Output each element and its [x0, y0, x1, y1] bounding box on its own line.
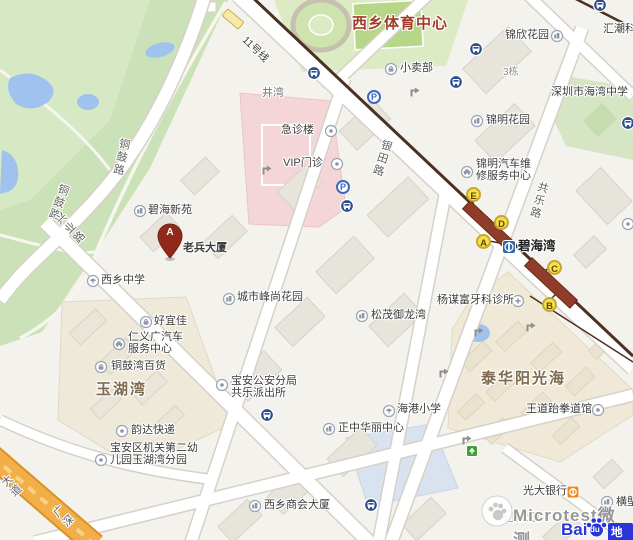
poi-label[interactable]: 深圳市海湾中学 [551, 86, 628, 98]
shop-icon[interactable] [96, 362, 107, 373]
park-icon[interactable] [467, 446, 478, 457]
metro-station-icon[interactable] [503, 241, 516, 254]
poi-label[interactable]: 锦明汽车维 [476, 158, 531, 170]
poi-label[interactable]: 锦明花园 [486, 114, 530, 126]
poi-label[interactable]: 急诊楼 [281, 124, 314, 136]
poi-label[interactable]: 修服务中心 [476, 170, 531, 182]
building-icon[interactable] [250, 501, 261, 512]
parking-icon[interactable]: P [336, 180, 350, 194]
baidu-logo-du: du [590, 525, 600, 534]
car-service-icon[interactable] [114, 339, 125, 350]
poi-label[interactable]: 宝安公安分局 [231, 375, 297, 387]
bus-stop-icon[interactable] [308, 67, 321, 80]
poi-label[interactable]: 西乡商会大厦 [264, 499, 330, 511]
dot-icon[interactable] [593, 405, 604, 416]
poi-label[interactable]: 好宜佳 [154, 315, 187, 327]
dot-icon[interactable] [332, 159, 343, 170]
area-label-taihua: 泰华阳光海 [481, 373, 566, 385]
baidu-map-canvas[interactable]: 西乡体育中心 玉湖湾 泰华阳光海 铜鼓路 铜鼓路 兴业路 银田路 共乐路 大道 … [0, 0, 633, 540]
area-label-yuhuwan: 玉湖湾 [96, 384, 147, 396]
poi-label[interactable]: VIP门诊 [283, 157, 323, 169]
poi-laobing-building[interactable]: 老兵大厦 [183, 242, 227, 254]
watermark-paw-icon [481, 495, 514, 528]
poi-label[interactable]: 杨谋富牙科诊所 [437, 294, 514, 306]
baidu-logo-ditu: 地图 [608, 523, 633, 540]
dot-icon[interactable] [117, 426, 128, 437]
building-icon[interactable] [224, 294, 235, 305]
poi-label[interactable]: 松茂御龙湾 [371, 309, 426, 321]
poi-label[interactable]: 共乐派出所 [231, 387, 286, 399]
bank-icon[interactable] [567, 486, 579, 498]
metro-exit-e[interactable]: E [466, 187, 481, 202]
bus-stop-icon[interactable] [365, 499, 378, 512]
school-icon[interactable] [88, 276, 99, 287]
poi-label[interactable]: 服务中心 [128, 343, 172, 355]
building-icon[interactable] [357, 311, 368, 322]
poi-label[interactable]: 宝安区机关第二幼 [110, 442, 198, 454]
bus-stop-icon[interactable] [341, 200, 354, 213]
poi-label[interactable]: 光大银行 [523, 485, 567, 497]
poi-label[interactable]: 汇潮科技 [603, 23, 633, 35]
map-scene [0, 0, 633, 540]
metro-station-name[interactable]: 碧海湾 [518, 240, 556, 252]
area-label-sports-center: 西乡体育中心 [352, 18, 448, 30]
dot-icon[interactable] [96, 455, 107, 466]
metro-exit-b[interactable]: B [542, 297, 557, 312]
dot-icon[interactable] [326, 126, 337, 137]
parking-icon[interactable]: P [367, 90, 381, 104]
bus-stop-icon[interactable] [622, 117, 633, 130]
poi-label[interactable]: 锦欣花园 [505, 29, 549, 41]
poi-label[interactable]: 海港小学 [397, 403, 441, 415]
marker-pin-letter: A [163, 227, 177, 238]
poi-label[interactable]: 碧海新苑 [148, 204, 192, 216]
car-repair-icon[interactable] [462, 167, 473, 178]
bus-stop-icon[interactable] [470, 43, 483, 56]
poi-label: 井湾 [262, 87, 284, 99]
school-icon[interactable] [384, 406, 395, 417]
building-icon[interactable] [552, 31, 563, 42]
poi-label[interactable]: 韵达快递 [131, 424, 175, 436]
bus-stop-icon[interactable] [594, 0, 607, 12]
poi-label[interactable]: 王道跆拳道馆 [526, 403, 592, 415]
clinic-cross-icon[interactable] [513, 296, 524, 307]
poi-label[interactable]: 西乡中学 [101, 274, 145, 286]
poi-label[interactable]: 仁义广汽车 [128, 331, 183, 343]
building-icon[interactable] [472, 116, 483, 127]
baidu-logo-bai: Bai [561, 520, 587, 540]
metro-exit-a[interactable]: A [476, 234, 491, 249]
metro-exit-d[interactable]: D [494, 215, 509, 230]
shop-icon[interactable] [386, 64, 397, 75]
building-icon[interactable] [135, 206, 146, 217]
poi-label[interactable]: 正中华丽中心 [338, 422, 404, 434]
poi-label[interactable]: 小卖部 [400, 62, 433, 74]
poi-label: 3栋 [503, 67, 519, 79]
metro-exit-c[interactable]: C [547, 260, 562, 275]
poi-label[interactable]: 儿园玉湖湾分园 [110, 454, 187, 466]
poi-label[interactable]: 城市峰尚花园 [237, 291, 303, 303]
bus-stop-icon[interactable] [450, 76, 463, 89]
building-icon[interactable] [324, 424, 335, 435]
shop-icon[interactable] [141, 317, 152, 328]
pond [77, 94, 99, 110]
poi-label[interactable]: 铜鼓湾百货 [111, 360, 166, 372]
bus-stop-icon[interactable] [261, 409, 274, 422]
dot-icon[interactable] [217, 380, 228, 391]
dot-icon[interactable] [623, 219, 633, 230]
